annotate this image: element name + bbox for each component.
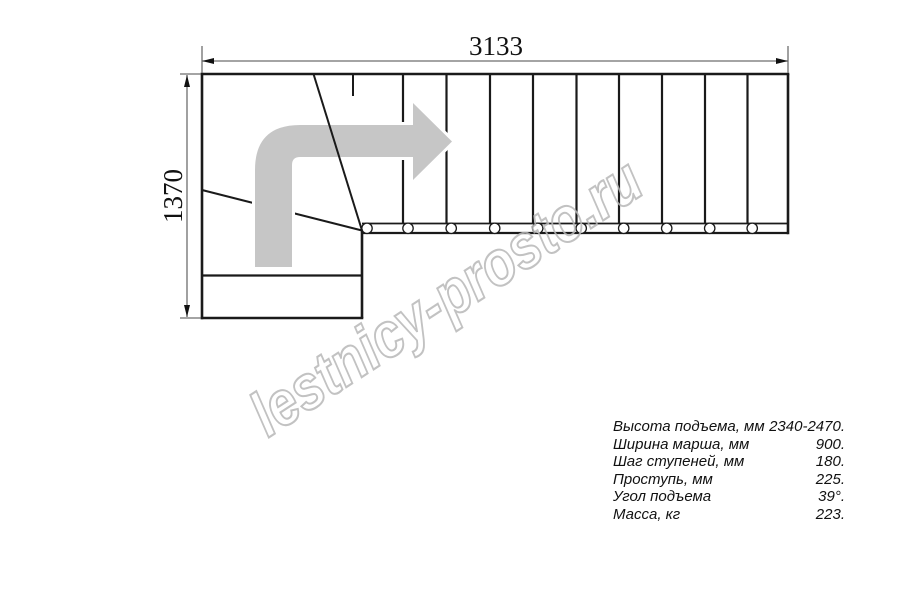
spec-row: Шаг ступеней, мм 180.	[613, 453, 845, 471]
spec-label: Высота подъема, мм	[613, 418, 765, 436]
mounting-hole	[446, 223, 456, 233]
dimension-height-label: 1370	[158, 169, 188, 223]
mounting-hole	[362, 223, 372, 233]
direction-arrow-icon	[255, 103, 452, 267]
spec-value: 2340-2470.	[769, 418, 845, 436]
spec-table: Высота подъема, мм 2340-2470. Ширина мар…	[613, 418, 845, 523]
spec-label: Проступь, мм	[613, 471, 713, 489]
spec-value: 39°.	[818, 488, 845, 506]
mounting-hole	[662, 223, 672, 233]
mounting-hole	[403, 223, 413, 233]
spec-row: Высота подъема, мм 2340-2470.	[613, 418, 845, 436]
spec-value: 225.	[816, 471, 845, 489]
dimension-width-label: 3133	[469, 31, 523, 61]
staircase-drawing-page: 3133 1370 lestnicy-prosto.ru Высота подъ…	[0, 0, 900, 600]
spec-value: 900.	[816, 436, 845, 454]
mounting-hole	[705, 223, 715, 233]
spec-label: Угол подъема	[613, 488, 711, 506]
spec-value: 223.	[816, 506, 845, 524]
spec-row: Масса, кг 223.	[613, 506, 845, 524]
spec-row: Угол подъема 39°.	[613, 488, 845, 506]
direction-arrow-shape	[255, 103, 452, 267]
dimension-height: 1370	[158, 74, 201, 318]
spec-row: Ширина марша, мм 900.	[613, 436, 845, 454]
dimension-arrow-top	[184, 75, 190, 87]
spec-row: Проступь, мм 225.	[613, 471, 845, 489]
spec-label: Ширина марша, мм	[613, 436, 749, 454]
mounting-hole	[747, 223, 757, 233]
dimension-arrow-right	[776, 58, 788, 64]
dimension-width: 3133	[202, 31, 788, 73]
dimension-arrow-bottom	[184, 305, 190, 317]
dimension-arrow-left	[202, 58, 214, 64]
spec-value: 180.	[816, 453, 845, 471]
spec-label: Шаг ступеней, мм	[613, 453, 744, 471]
spec-label: Масса, кг	[613, 506, 680, 524]
